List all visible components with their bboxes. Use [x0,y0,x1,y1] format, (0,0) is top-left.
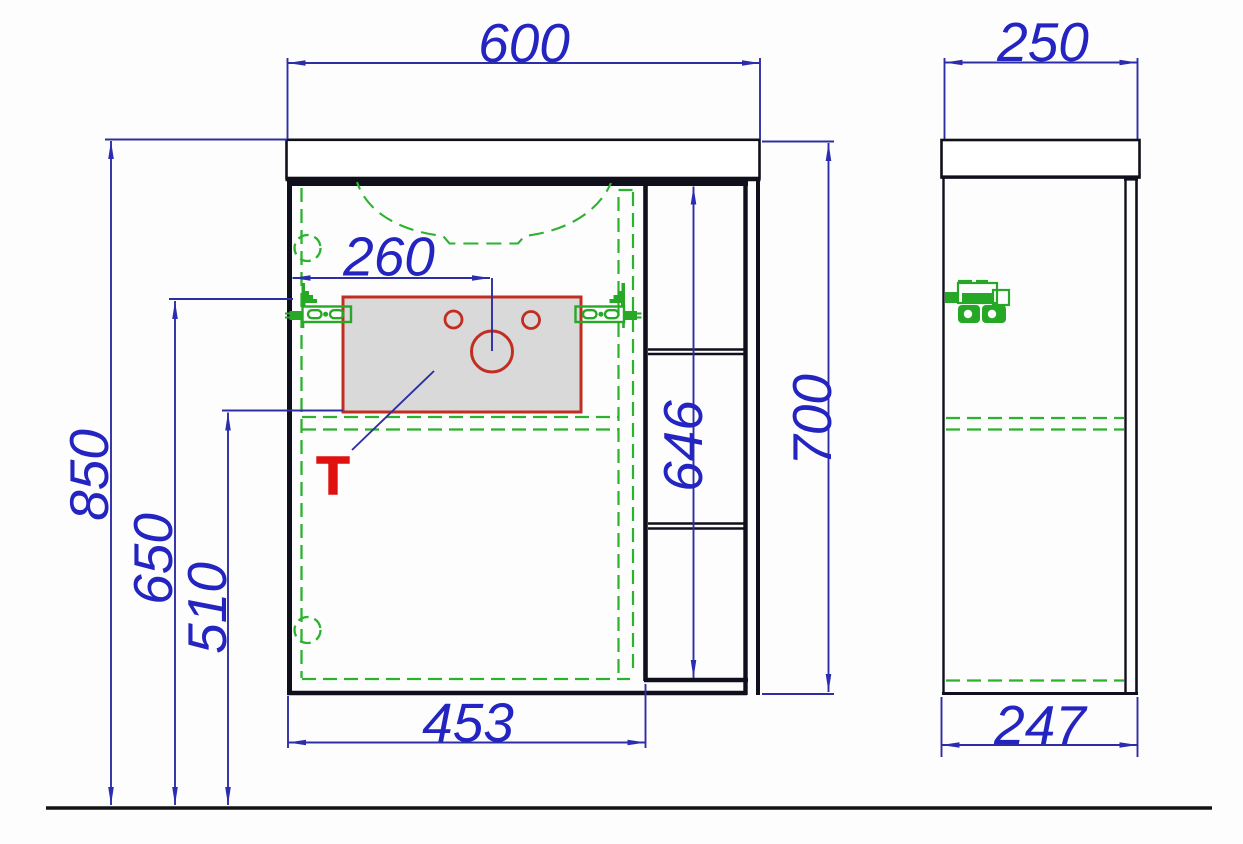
svg-text:260: 260 [342,226,435,288]
svg-text:453: 453 [422,692,514,754]
svg-text:T: T [317,446,350,506]
svg-text:646: 646 [652,400,714,492]
svg-text:600: 600 [478,12,570,74]
svg-text:700: 700 [781,374,843,466]
svg-text:850: 850 [58,429,120,521]
svg-text:250: 250 [996,11,1089,73]
svg-text:510: 510 [176,562,238,654]
svg-text:247: 247 [993,694,1088,756]
svg-text:650: 650 [122,513,184,605]
